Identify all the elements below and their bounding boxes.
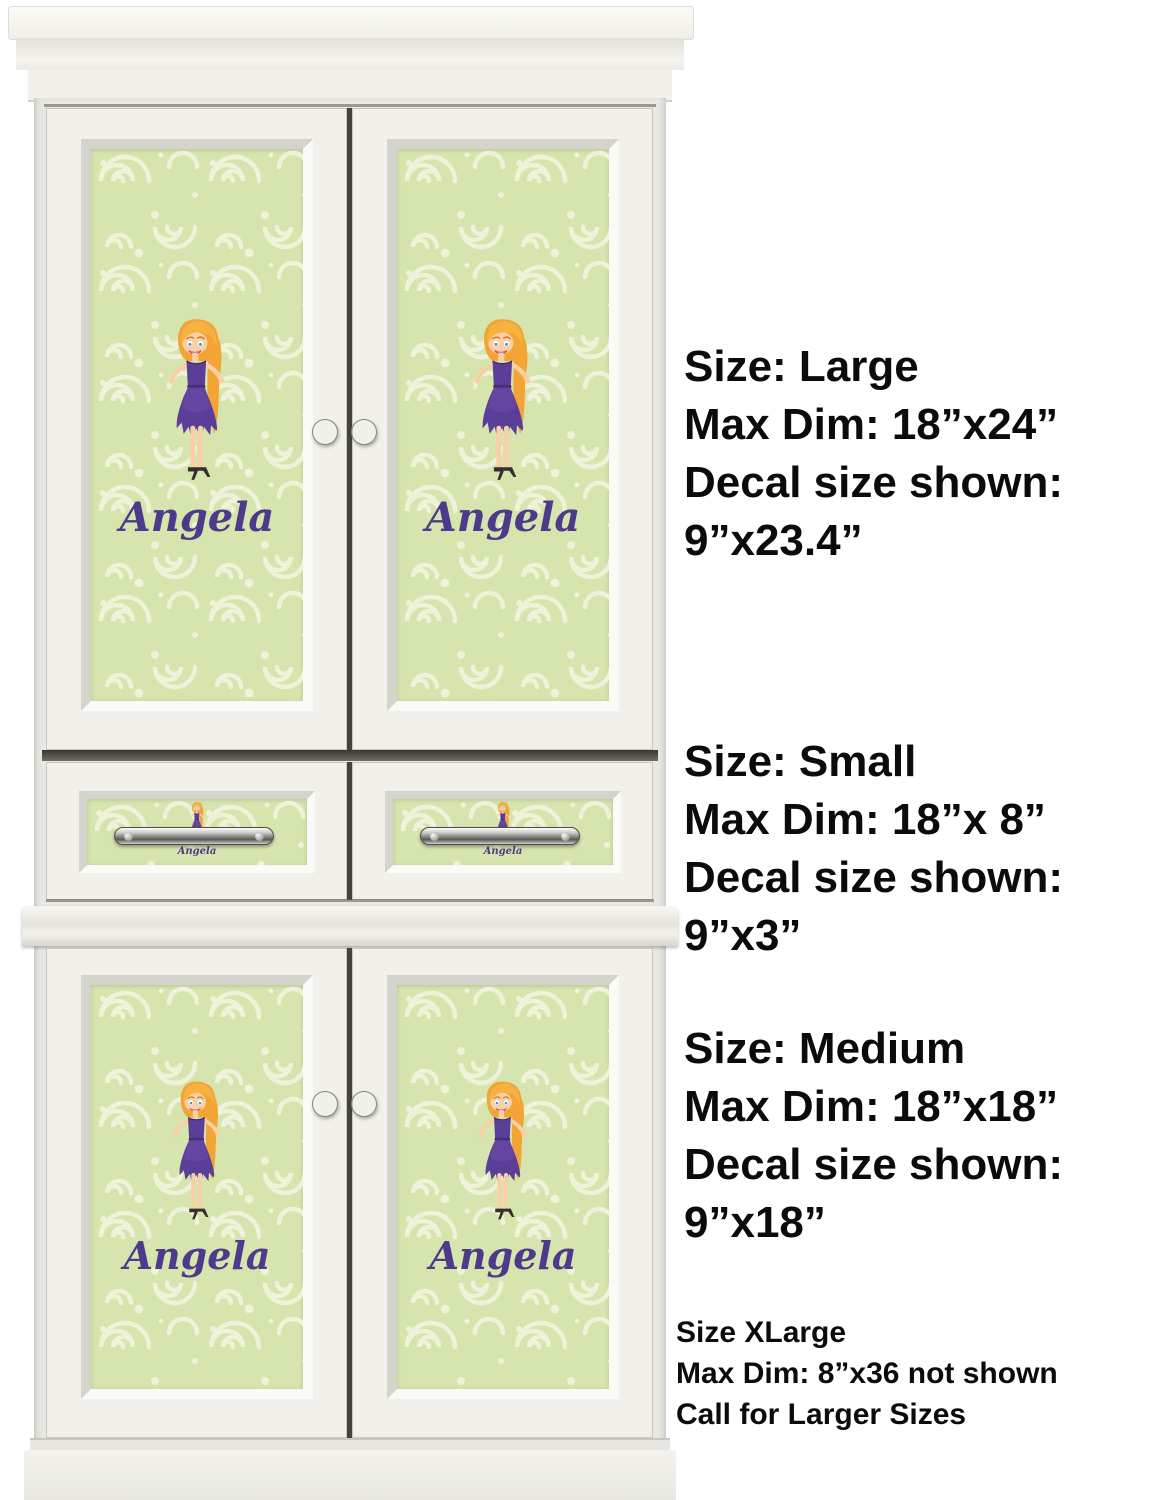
girl-character-illustration bbox=[467, 1078, 539, 1229]
upper-left-door-knob bbox=[312, 419, 338, 445]
decal-name-text: Angela bbox=[397, 494, 609, 541]
upper-right-door-knob bbox=[351, 419, 377, 445]
cabinet-seam bbox=[44, 104, 656, 107]
size-note-line: Decal size shown: bbox=[684, 454, 1063, 512]
door-gap bbox=[347, 948, 352, 1438]
cabinet-base bbox=[24, 1450, 676, 1500]
decal-medium-left: Angela bbox=[91, 985, 303, 1389]
right-drawer-handle bbox=[420, 827, 580, 845]
size-note-line: Max Dim: 18”x18” bbox=[684, 1078, 1063, 1136]
door-panel-bevel: Angela bbox=[81, 975, 313, 1399]
girl-character-illustration bbox=[155, 315, 239, 491]
cabinet-seam bbox=[46, 899, 654, 902]
decal-large-left: Angela bbox=[91, 149, 303, 701]
upper-left-door: Angela bbox=[46, 108, 347, 750]
upper-right-door: Angela bbox=[352, 108, 653, 750]
drawer-gap bbox=[347, 762, 352, 900]
handle-screw bbox=[430, 832, 439, 841]
girl-character-illustration bbox=[461, 315, 545, 491]
size-note-medium: Size: Medium Max Dim: 18”x18” Decal size… bbox=[684, 1020, 1063, 1252]
size-note-line: 9”x18” bbox=[684, 1194, 1063, 1252]
cabinet-crown-top bbox=[8, 6, 694, 40]
size-note-line: 9”x3” bbox=[684, 907, 1063, 965]
decal-name-text: Angela bbox=[91, 494, 303, 541]
lower-right-door-knob bbox=[351, 1091, 377, 1117]
size-note-line: 9”x23.4” bbox=[684, 512, 1063, 570]
size-note-xlarge: Size XLarge Max Dim: 8”x36 not shown Cal… bbox=[676, 1312, 1058, 1435]
decal-name-text: Angela bbox=[87, 846, 307, 857]
handle-screw bbox=[255, 832, 264, 841]
size-note-line: Decal size shown: bbox=[684, 849, 1063, 907]
size-note-line: Call for Larger Sizes bbox=[676, 1394, 1058, 1435]
lower-right-door: Angela bbox=[352, 948, 653, 1438]
size-note-line: Max Dim: 8”x36 not shown bbox=[676, 1353, 1058, 1394]
lower-left-door: Angela bbox=[46, 948, 347, 1438]
door-panel-bevel: Angela bbox=[387, 975, 619, 1399]
cabinet-crown-cove bbox=[16, 38, 684, 70]
lower-left-door-knob bbox=[312, 1091, 338, 1117]
left-drawer-handle bbox=[114, 827, 274, 845]
cabinet-mid-molding bbox=[22, 906, 678, 946]
cabinet-shadow-band bbox=[42, 750, 658, 761]
girl-character-illustration bbox=[161, 1078, 233, 1229]
size-note-small: Size: Small Max Dim: 18”x 8” Decal size … bbox=[684, 733, 1063, 965]
decal-name-text: Angela bbox=[393, 846, 613, 857]
decal-name-text: Angela bbox=[91, 1233, 303, 1278]
decal-large-right: Angela bbox=[397, 149, 609, 701]
size-note-line: Size: Medium bbox=[684, 1020, 1063, 1078]
size-note-line: Size XLarge bbox=[676, 1312, 1058, 1353]
size-note-line: Decal size shown: bbox=[684, 1136, 1063, 1194]
size-note-line: Size: Small bbox=[684, 733, 1063, 791]
size-note-line: Max Dim: 18”x24” bbox=[684, 396, 1063, 454]
size-note-line: Size: Large bbox=[684, 338, 1063, 396]
handle-screw bbox=[561, 832, 570, 841]
door-panel-bevel: Angela bbox=[81, 139, 313, 711]
product-size-diagram: Angela Angela Angela bbox=[0, 0, 1151, 1500]
decal-name-text: Angela bbox=[397, 1233, 609, 1278]
door-panel-bevel: Angela bbox=[387, 139, 619, 711]
size-note-large: Size: Large Max Dim: 18”x24” Decal size … bbox=[684, 338, 1063, 570]
handle-screw bbox=[124, 832, 133, 841]
decal-medium-right: Angela bbox=[397, 985, 609, 1389]
size-note-line: Max Dim: 18”x 8” bbox=[684, 791, 1063, 849]
